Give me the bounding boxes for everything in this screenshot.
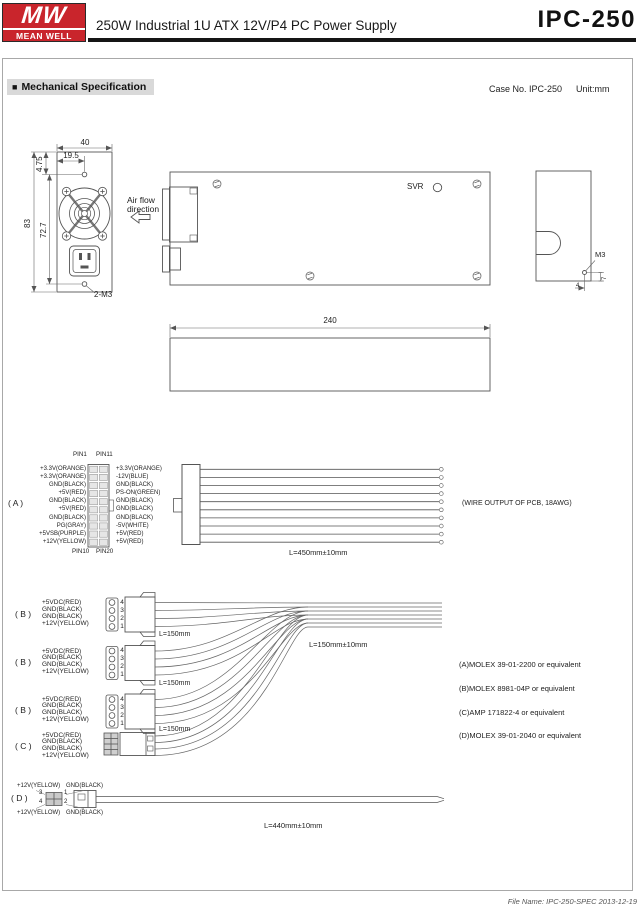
pin-label: PS-ON(GREEN) — [116, 489, 191, 497]
model-number: IPC-250 — [480, 7, 636, 33]
pin-label: GND(BLACK) — [116, 497, 191, 505]
d-top-left-label: +12V(YELLOW) — [17, 783, 60, 790]
pin-number: 3 — [119, 655, 126, 663]
pin-label: GND(BLACK) — [22, 481, 86, 489]
row-label-a: ( A ) — [8, 499, 23, 508]
pin-label: +5V(RED) — [116, 538, 191, 546]
svr-label: SVR — [407, 183, 423, 192]
b3-pin-labels: +5VDC(RED) GND(BLACK) GND(BLACK) +12V(YE… — [42, 697, 89, 725]
logo-brand-text: MEAN WELL — [3, 28, 85, 42]
dim-inlet-19-5: 19.5 — [56, 152, 86, 161]
wire-length-440: L=440mm±10mm — [264, 822, 323, 830]
pin-number: 2 — [119, 712, 126, 720]
pin-label: +5V(RED) — [22, 489, 86, 497]
atx-left-pin-list: +3.3V(ORANGE) +3.3V(ORANGE) GND(BLACK) +… — [22, 465, 86, 546]
dim-holes-span-72-7: 72.7 — [40, 222, 49, 238]
d-pin-3: 3 — [39, 790, 42, 797]
content-border — [2, 58, 633, 891]
wire-length-450: L=450mm±10mm — [289, 549, 348, 557]
pin-number: 3 — [119, 607, 126, 615]
pin-label: +3.3V(ORANGE) — [22, 465, 86, 473]
dim-v-7: 7 — [602, 277, 609, 280]
pin-label: +12V(YELLOW) — [42, 669, 89, 676]
pin-number: 1 — [119, 720, 126, 728]
section-title: Mechanical Specification — [21, 81, 146, 93]
wire-output-note: (WIRE OUTPUT OF PCB, 18AWG) — [462, 500, 572, 508]
row-label-b2: ( B ) — [15, 658, 31, 667]
pin-label: GND(BLACK) — [22, 514, 86, 522]
row-label-b3: ( B ) — [15, 706, 31, 715]
wire-length-150-b3: L=150mm — [159, 726, 190, 734]
pin1-label: PIN1 — [73, 452, 87, 459]
pin-label: -5V(WHITE) — [116, 522, 191, 530]
pin-number: 4 — [119, 647, 126, 655]
pin-label: +12V(YELLOW) — [42, 717, 89, 724]
pin10-label: PIN10 — [72, 549, 89, 556]
c-pin-labels: +5VDC(RED) GND(BLACK) GND(BLACK) +12V(YE… — [42, 733, 89, 761]
spec-page: MW MEAN WELL 250W Industrial 1U ATX 12V/… — [0, 0, 640, 910]
pin-label: GND(BLACK) — [22, 497, 86, 505]
pin20-label: PIN20 — [96, 549, 113, 556]
atx-right-pin-list: +3.3V(ORANGE) -12V(BLUE) GND(BLACK) PS-O… — [116, 465, 191, 546]
note-amp-c: (C)AMP 171822-4 or equivalent — [459, 708, 564, 717]
note-molex-b: (B)MOLEX 8981-04P or equivalent — [459, 684, 575, 693]
unit-label: Unit:mm — [576, 85, 610, 95]
section-bullet-icon: ■ — [12, 82, 17, 92]
dim-height-83: 83 — [24, 219, 33, 228]
pin11-label: PIN11 — [96, 452, 113, 459]
dim-top-4-75: 4.75 — [36, 156, 45, 172]
wire-length-150-b2: L=150mm — [159, 680, 190, 688]
dim-width-40: 40 — [70, 139, 100, 148]
airflow-label-line2: direction — [127, 205, 159, 214]
dim-h-4: 4 — [576, 283, 579, 290]
pin-number: 1 — [119, 671, 126, 679]
d-top-right-label: GND(BLACK) — [66, 783, 103, 790]
meanwell-logo: MW MEAN WELL — [2, 3, 86, 42]
pin-number: 4 — [119, 696, 126, 704]
note-molex-a: (A)MOLEX 39-01-2200 or equivalent — [459, 660, 581, 669]
pin-label: GND(BLACK) — [116, 505, 191, 513]
logo-mw-monogram: MW — [2, 4, 87, 28]
b2-pin-labels: +5VDC(RED) GND(BLACK) GND(BLACK) +12V(YE… — [42, 649, 89, 677]
pin-label: +12V(YELLOW) — [42, 753, 89, 760]
note-molex-d: (D)MOLEX 39-01-2040 or equivalent — [459, 731, 581, 740]
page-title: 250W Industrial 1U ATX 12V/P4 PC Power S… — [96, 19, 397, 34]
dim-length-240: 240 — [315, 317, 345, 326]
row-label-b1: ( B ) — [15, 610, 31, 619]
pin-label: +12V(YELLOW) — [42, 621, 89, 628]
row-label-d: ( D ) — [11, 794, 28, 803]
wire-length-150-b1: L=150mm — [159, 631, 190, 639]
b2-pin-numbers: 4 3 2 1 — [119, 647, 126, 679]
holes-label-2-m3: 2-M3 — [94, 291, 112, 300]
pin-label: +5V(RED) — [22, 505, 86, 513]
b1-pin-numbers: 4 3 2 1 — [119, 599, 126, 631]
pin-label: GND(BLACK) — [116, 514, 191, 522]
b3-pin-numbers: 4 3 2 1 — [119, 696, 126, 728]
m3-label: M3 — [595, 251, 605, 259]
pin-label: -12V(BLUE) — [116, 473, 191, 481]
pin-label: +3.3V(ORANGE) — [22, 473, 86, 481]
header-rule — [88, 38, 636, 42]
d-bottom-left-label: +12V(YELLOW) — [17, 810, 60, 817]
pin-label: +5VSB(PURPLE) — [22, 530, 86, 538]
footer-filename: File Name: IPC-250-SPEC 2013-12-19 — [400, 897, 637, 906]
pin-number: 4 — [119, 599, 126, 607]
pin-label: GND(BLACK) — [116, 481, 191, 489]
case-number: Case No. IPC-250 — [489, 85, 562, 95]
d-pin-1: 1 — [64, 790, 67, 797]
pin-number: 3 — [119, 704, 126, 712]
bundle-length-150: L=150mm±10mm — [309, 641, 368, 649]
pin-label: +3.3V(ORANGE) — [116, 465, 191, 473]
pin-number: 1 — [119, 623, 126, 631]
section-header: ■Mechanical Specification — [7, 79, 154, 95]
d-bottom-right-label: GND(BLACK) — [66, 810, 103, 817]
d-pin-4: 4 — [39, 799, 42, 806]
b1-pin-labels: +5VDC(RED) GND(BLACK) GND(BLACK) +12V(YE… — [42, 600, 89, 628]
row-label-c: ( C ) — [15, 742, 32, 751]
pin-number: 2 — [119, 663, 126, 671]
pin-label: PG(GRAY) — [22, 522, 86, 530]
pin-label: +12V(YELLOW) — [22, 538, 86, 546]
pin-label: +5V(RED) — [116, 530, 191, 538]
pin-number: 2 — [119, 615, 126, 623]
d-pin-2: 2 — [64, 799, 67, 806]
